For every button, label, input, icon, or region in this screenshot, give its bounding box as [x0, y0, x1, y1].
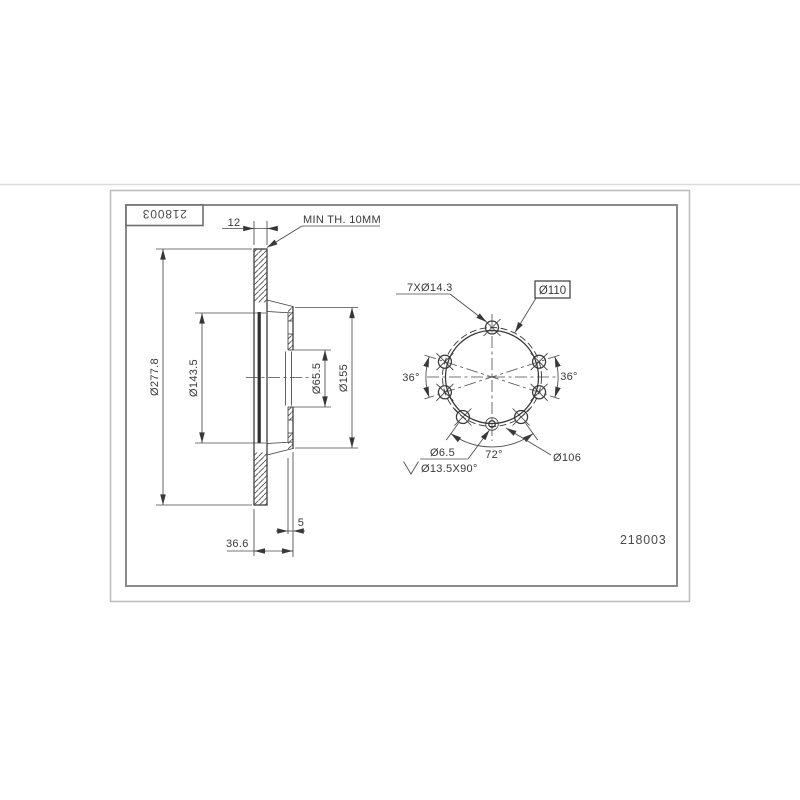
- callout-bolt-circle-label: Ø110: [539, 285, 566, 297]
- callout-countersink-label: Ø13.5X90°: [421, 463, 478, 475]
- countersink-icon: [404, 462, 419, 475]
- dim-total-width: 36.6: [226, 509, 293, 556]
- dim-bore-diameter: Ø65.5: [290, 350, 331, 407]
- callout-bolt-circle: Ø110: [515, 281, 570, 333]
- dim-angle-right-label: 36°: [560, 371, 578, 383]
- section-view: Ø277.8 Ø143.5 Ø65.5 Ø155: [149, 214, 381, 557]
- dim-angle-left: 36°: [402, 357, 429, 398]
- dim-bore-diameter-label: Ø65.5: [311, 363, 323, 394]
- dim-thickness-label: 12: [228, 217, 241, 229]
- title-block: 218003: [126, 205, 203, 226]
- dim-angle-left-label: 36°: [402, 372, 420, 384]
- disc-plate: [254, 249, 267, 505]
- dim-angle-right: 36°: [555, 357, 578, 398]
- dim-outer-diameter-label: Ø277.8: [149, 358, 161, 396]
- dim-thickness: 12: [222, 217, 278, 245]
- note-min-thickness-label: MIN TH. 10MM: [303, 214, 381, 226]
- dim-angle-bottom-label: 72°: [485, 449, 503, 461]
- callout-bolt-holes-label: 7XØ14.3: [407, 282, 453, 294]
- dim-mount-wall-thickness: 5: [276, 452, 305, 557]
- front-view: 36° 36° 72° 7XØ14.3 Ø110 Ø6.5: [396, 281, 581, 475]
- dim-mount-wall-thickness-label: 5: [298, 517, 304, 529]
- dim-total-width-label: 36.6: [226, 538, 249, 550]
- callout-pin-hole: Ø6.5 Ø13.5X90°: [404, 430, 490, 475]
- part-number: 218003: [620, 533, 667, 547]
- inner-border: [126, 205, 677, 586]
- brake-disc-drawing: 218003: [0, 0, 800, 800]
- dim-outer-diameter: Ø277.8: [149, 249, 252, 505]
- callout-pin-hole-label: Ø6.5: [430, 447, 455, 459]
- page-frame: [0, 185, 800, 602]
- note-min-thickness: MIN TH. 10MM: [267, 214, 381, 248]
- hat-back-edge: [258, 312, 261, 443]
- centerlines: [425, 314, 560, 441]
- dim-hat-inner-diameter-label: Ø143.5: [188, 359, 200, 397]
- dim-hat-outer-diameter: Ø155: [295, 308, 358, 449]
- title-block-part-number: 218003: [142, 207, 187, 221]
- dim-hat-outer-diameter-label: Ø155: [338, 364, 350, 392]
- drawing-sheet: 218003: [0, 0, 800, 800]
- callout-bolt-holes: 7XØ14.3: [396, 282, 487, 322]
- callout-pin-circle: Ø106: [506, 428, 581, 464]
- callout-pin-circle-label: Ø106: [553, 452, 581, 464]
